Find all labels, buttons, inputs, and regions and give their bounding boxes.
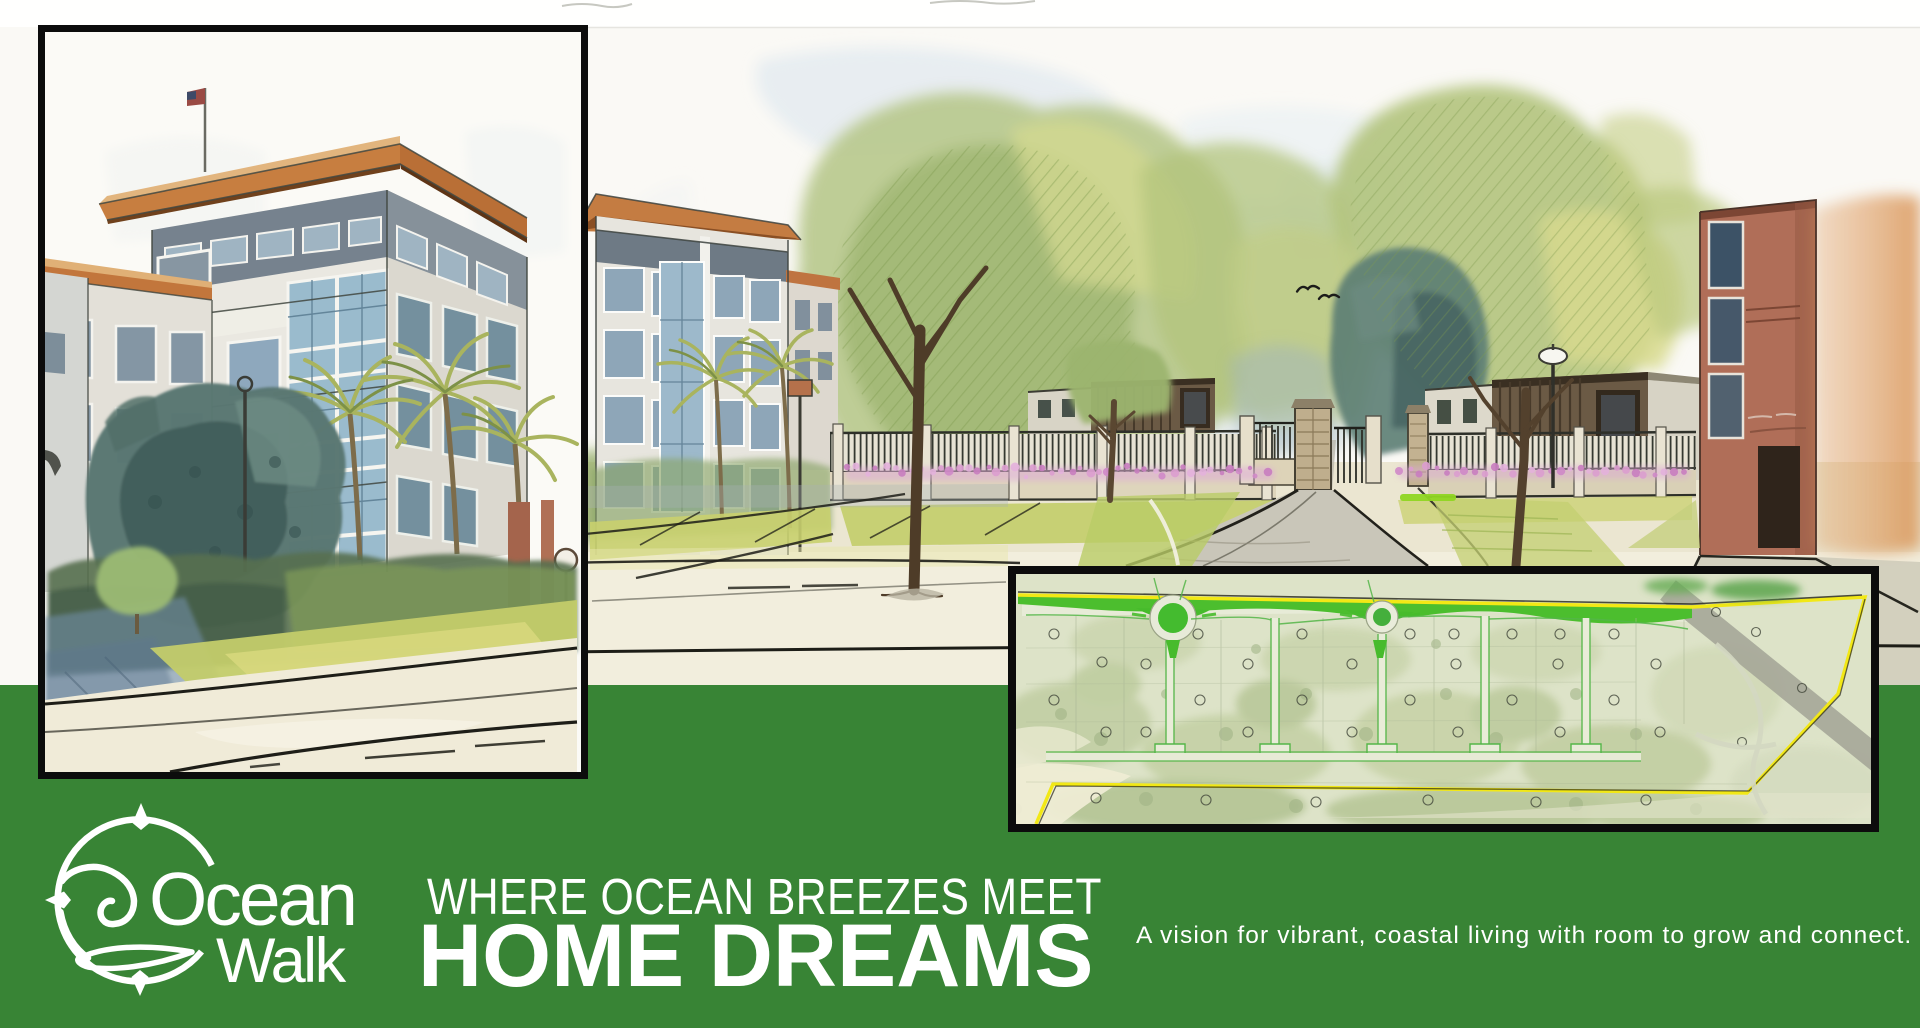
svg-text:Walk: Walk	[216, 926, 347, 996]
